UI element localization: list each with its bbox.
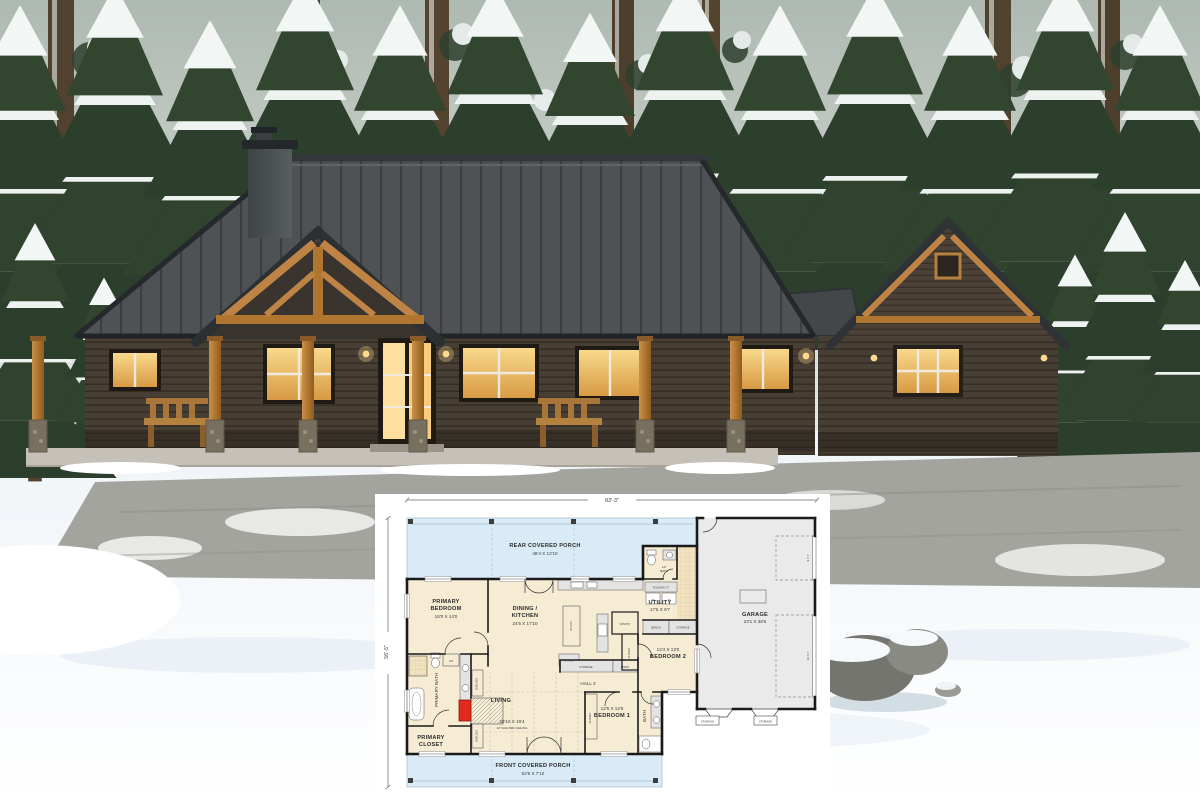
sink <box>667 552 673 558</box>
floor-plan-inset: 83'-3" 56'-5" REAR COVERED PORCH 48'4 X … <box>375 494 830 792</box>
overall-depth-label: 56'-5" <box>384 645 390 659</box>
svg-text:BEDROOM 1: BEDROOM 1 <box>594 713 630 719</box>
svg-text:48'4 X 12'10: 48'4 X 12'10 <box>532 551 558 556</box>
window <box>459 344 539 402</box>
window <box>575 346 645 400</box>
svg-text:LIN: LIN <box>449 659 453 663</box>
svg-text:24'5 X 17'10: 24'5 X 17'10 <box>512 621 538 626</box>
svg-text:20'10 X 16'4: 20'10 X 16'4 <box>499 719 525 724</box>
front-porch-label: FRONT COVERED PORCH <box>496 763 571 769</box>
svg-text:STORAGE: STORAGE <box>701 720 714 724</box>
shower <box>409 656 427 676</box>
primary-bath-label: PRIMARY BATH <box>434 673 439 707</box>
pantry-label: PANTRY <box>620 622 631 626</box>
svg-text:CLOSET: CLOSET <box>419 742 444 748</box>
garage-door-small-label: 9 X 7 <box>806 554 810 561</box>
floor-plan: 83'-3" 56'-5" REAR COVERED PORCH 48'4 X … <box>375 494 830 792</box>
toilet <box>642 739 650 749</box>
fridge-label: W/ REF <box>564 659 574 663</box>
svg-text:STORAGE: STORAGE <box>759 720 772 724</box>
kitchen-sink <box>571 582 583 588</box>
svg-text:STORAGE: STORAGE <box>579 665 592 669</box>
overall-width-label: 83'-3" <box>605 498 619 504</box>
toilet <box>432 658 440 668</box>
garage-sconce <box>1041 355 1048 362</box>
utility-tile-floor <box>677 547 697 620</box>
svg-text:LINEN: LINEN <box>621 665 629 669</box>
svg-text:BENCH: BENCH <box>651 626 660 630</box>
double-vanity <box>460 654 471 702</box>
entry-step <box>370 444 444 452</box>
svg-text:BEDROOM: BEDROOM <box>431 606 462 612</box>
svg-text:16'0 X 14'0: 16'0 X 14'0 <box>435 614 458 619</box>
svg-text:13' VAULTED CEILING: 13' VAULTED CEILING <box>497 726 529 730</box>
svg-text:52'8 X 7'10: 52'8 X 7'10 <box>522 771 545 776</box>
bath-label: BATH <box>642 710 647 722</box>
dining-kitchen-label: DINING / <box>513 606 538 612</box>
tub <box>409 688 424 720</box>
svg-text:FOLDING CT: FOLDING CT <box>653 586 670 590</box>
svg-text:23'1 X 38'6: 23'1 X 38'6 <box>744 619 767 624</box>
svg-text:SHELVES: SHELVES <box>475 678 479 690</box>
window <box>109 349 161 391</box>
bedroom1-label: 12'5 X 12'6 <box>601 706 624 711</box>
svg-text:SHELVES: SHELVES <box>475 730 479 742</box>
hall-label: HALL 2 <box>580 681 596 686</box>
island-dim-label: 42 X 8'7 <box>569 621 573 631</box>
rear-porch-label: REAR COVERED PORCH <box>509 543 580 549</box>
garage-label: GARAGE <box>742 612 768 618</box>
garage-door-large-label: 12 X 7 <box>806 651 810 660</box>
svg-text:CLOSET: CLOSET <box>627 647 631 658</box>
garage-window <box>893 345 963 397</box>
chimney <box>242 127 298 238</box>
svg-text:STORAGE: STORAGE <box>676 626 689 630</box>
living-label: LIVING <box>491 698 511 704</box>
window <box>263 344 335 404</box>
garage-sconce <box>871 355 878 362</box>
svg-text:CLOSET: CLOSET <box>588 712 592 723</box>
primary-closet-label: PRIMARY <box>417 735 444 741</box>
svg-text:BEDROOM 2: BEDROOM 2 <box>650 654 686 660</box>
screenshot-root: { "floor_plan": { "overall": { "width_la… <box>0 0 1200 800</box>
toilet <box>648 555 656 565</box>
bedroom2-label: 12'4 X 13'0 <box>657 647 680 652</box>
svg-text:KITCHEN: KITCHEN <box>512 613 539 619</box>
svg-text:BATH: BATH <box>660 569 668 573</box>
primary-bedroom-label: PRIMARY <box>432 599 459 605</box>
svg-text:17'5 X 6'7: 17'5 X 6'7 <box>650 607 671 612</box>
gable-vent <box>936 254 960 278</box>
fireplace <box>459 700 471 721</box>
svg-text:W: W <box>652 598 655 602</box>
